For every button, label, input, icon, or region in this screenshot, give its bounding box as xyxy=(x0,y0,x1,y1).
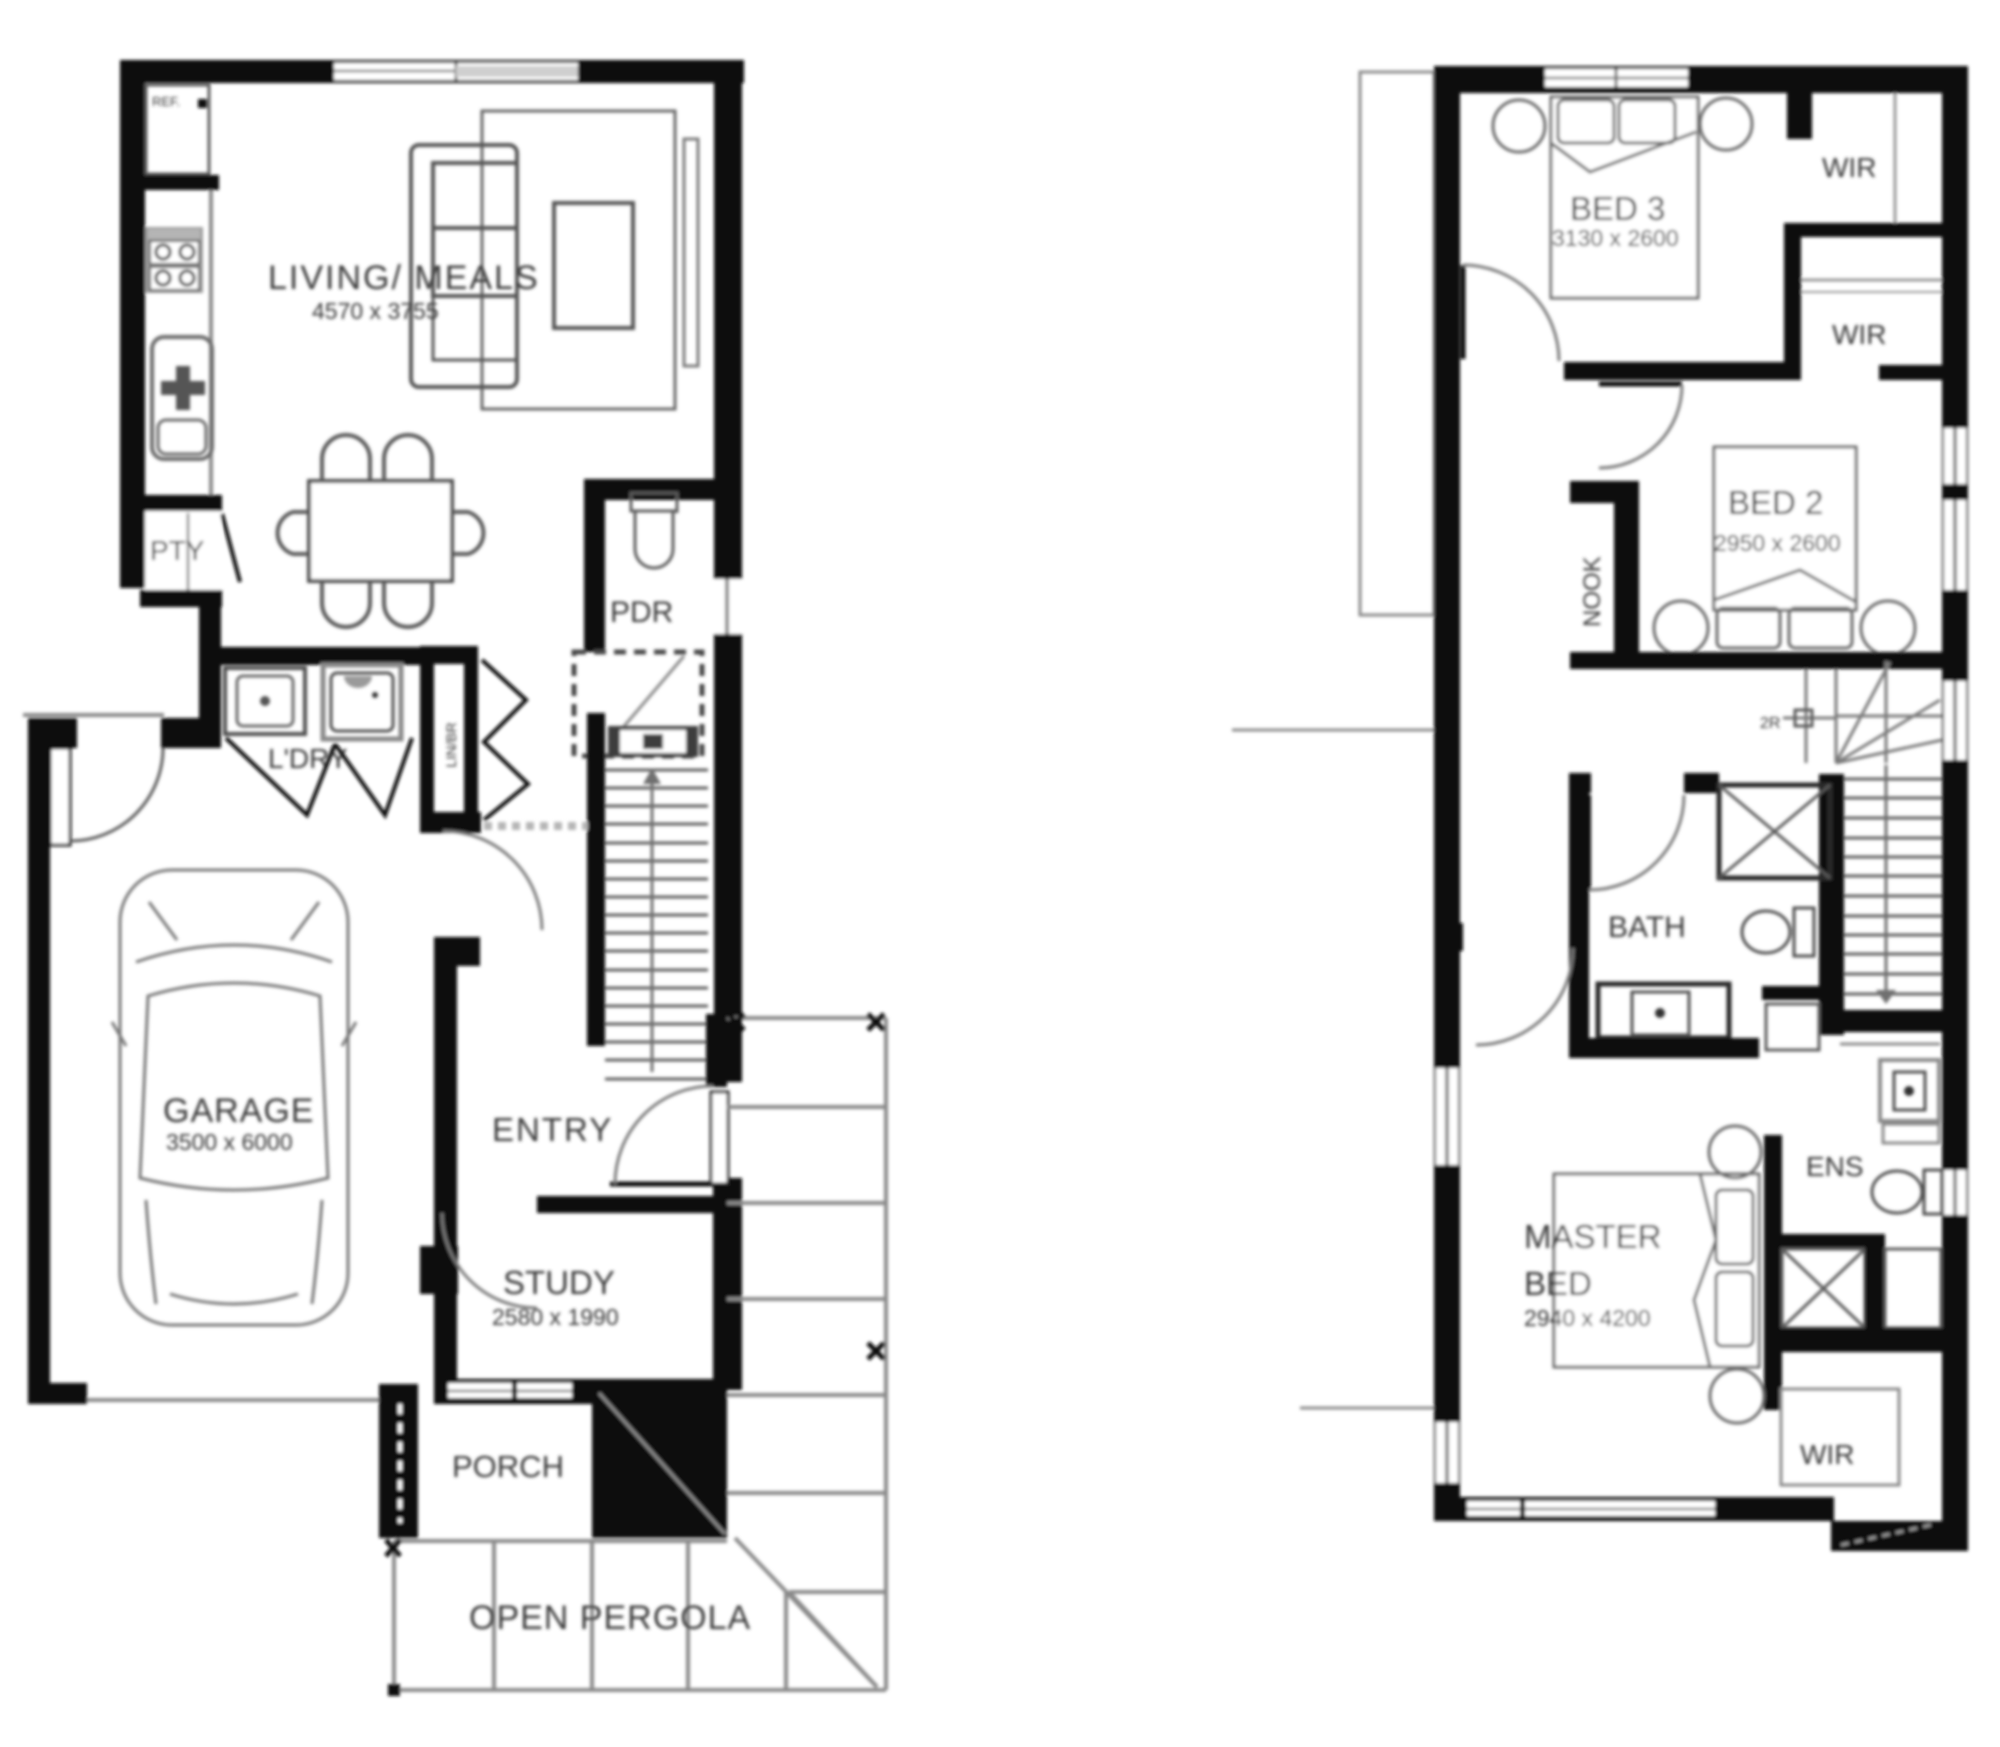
svg-text:3130 x 2600: 3130 x 2600 xyxy=(1552,225,1679,251)
svg-text:3500 x 6000: 3500 x 6000 xyxy=(166,1129,293,1155)
svg-text:LIVING/ MEALS: LIVING/ MEALS xyxy=(268,259,540,297)
svg-text:PTY: PTY xyxy=(150,535,205,566)
svg-text:BED 3: BED 3 xyxy=(1570,190,1665,227)
svg-text:PORCH: PORCH xyxy=(452,1449,564,1484)
svg-text:2R: 2R xyxy=(1760,715,1780,732)
svg-text:2580 x 1990: 2580 x 1990 xyxy=(492,1304,619,1330)
svg-text:NOOK: NOOK xyxy=(1579,556,1606,627)
svg-text:BATH: BATH xyxy=(1608,911,1686,944)
svg-text:2950 x 2600: 2950 x 2600 xyxy=(1714,530,1841,556)
svg-text:GARAGE: GARAGE xyxy=(163,1092,314,1130)
svg-text:LIN/BR: LIN/BR xyxy=(443,722,459,767)
svg-text:ENTRY: ENTRY xyxy=(492,1111,613,1148)
svg-text:ENS: ENS xyxy=(1806,1151,1864,1182)
svg-text:WIR: WIR xyxy=(1822,152,1876,183)
svg-text:PDR: PDR xyxy=(610,596,673,629)
svg-text:4570 x 3755: 4570 x 3755 xyxy=(312,298,439,324)
svg-text:REF.: REF. xyxy=(152,94,180,109)
svg-text:BED 2: BED 2 xyxy=(1728,484,1823,521)
svg-text:MASTER: MASTER xyxy=(1524,1218,1662,1255)
svg-text:WIR: WIR xyxy=(1800,1439,1854,1470)
svg-text:BED: BED xyxy=(1524,1265,1592,1302)
svg-text:OPEN PERGOLA: OPEN PERGOLA xyxy=(469,1599,751,1637)
svg-text:WIR: WIR xyxy=(1832,319,1886,350)
svg-text:2940 x 4200: 2940 x 4200 xyxy=(1524,1305,1651,1331)
svg-text:STUDY: STUDY xyxy=(503,1264,615,1301)
